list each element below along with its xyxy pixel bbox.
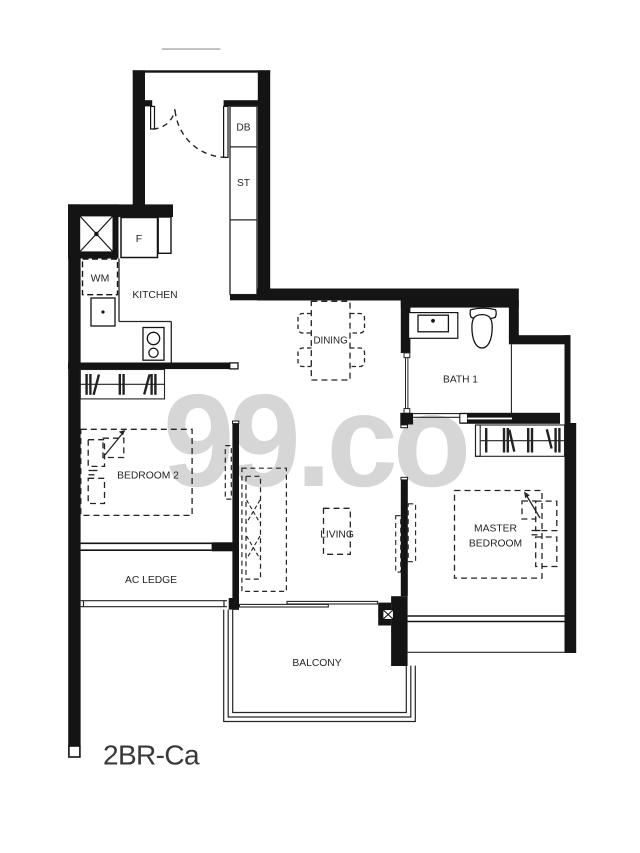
svg-text:BALCONY: BALCONY bbox=[292, 658, 341, 669]
svg-text:LIVING: LIVING bbox=[320, 530, 354, 541]
svg-text:KITCHEN: KITCHEN bbox=[132, 290, 177, 301]
svg-text:BATH 1: BATH 1 bbox=[443, 375, 478, 386]
svg-text:F: F bbox=[136, 233, 142, 245]
svg-text:99.co: 99.co bbox=[163, 366, 467, 514]
svg-text:DB: DB bbox=[236, 123, 250, 134]
svg-text:DINING: DINING bbox=[313, 336, 347, 347]
svg-text:BEDROOM 2: BEDROOM 2 bbox=[117, 471, 179, 482]
svg-text:2BR-Ca: 2BR-Ca bbox=[103, 740, 200, 771]
svg-text:BEDROOM: BEDROOM bbox=[469, 539, 522, 550]
svg-text:ST: ST bbox=[237, 178, 250, 189]
svg-text:AC LEDGE: AC LEDGE bbox=[125, 575, 177, 586]
svg-text:WM: WM bbox=[91, 273, 110, 285]
svg-text:MASTER: MASTER bbox=[474, 524, 517, 535]
